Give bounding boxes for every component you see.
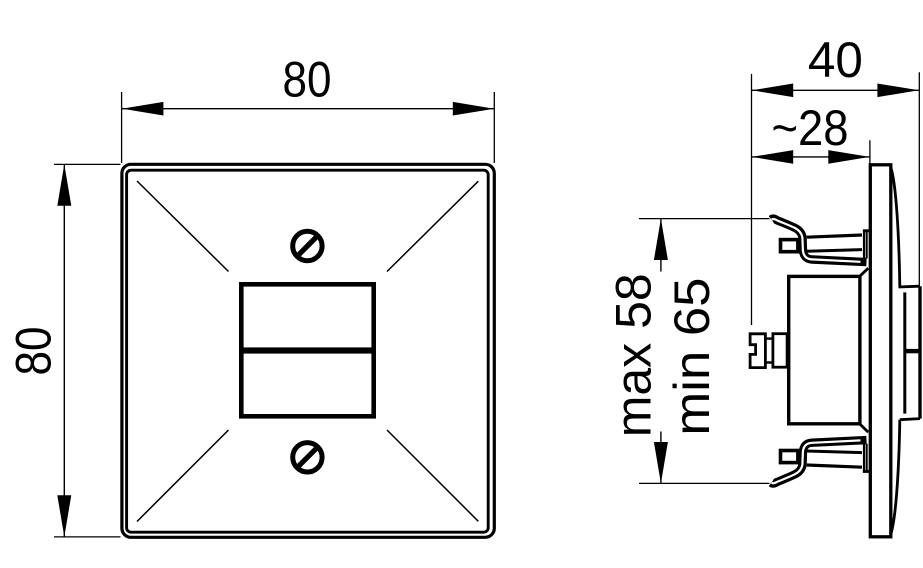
svg-text:max 58: max 58 — [606, 273, 662, 437]
svg-text:min 65: min 65 — [664, 278, 720, 436]
svg-text:~28: ~28 — [772, 100, 849, 156]
svg-text:40: 40 — [808, 32, 863, 88]
svg-text:80: 80 — [5, 327, 61, 376]
svg-text:80: 80 — [283, 51, 332, 107]
